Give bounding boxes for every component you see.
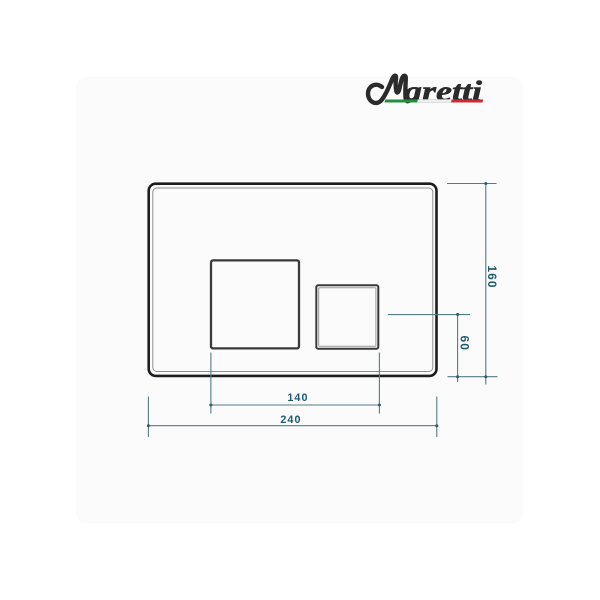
svg-text:aretti: aretti [404,77,482,108]
svg-text:60: 60 [457,336,471,352]
svg-text:240: 240 [280,414,301,426]
svg-text:160: 160 [485,265,499,288]
svg-text:140: 140 [287,392,308,404]
